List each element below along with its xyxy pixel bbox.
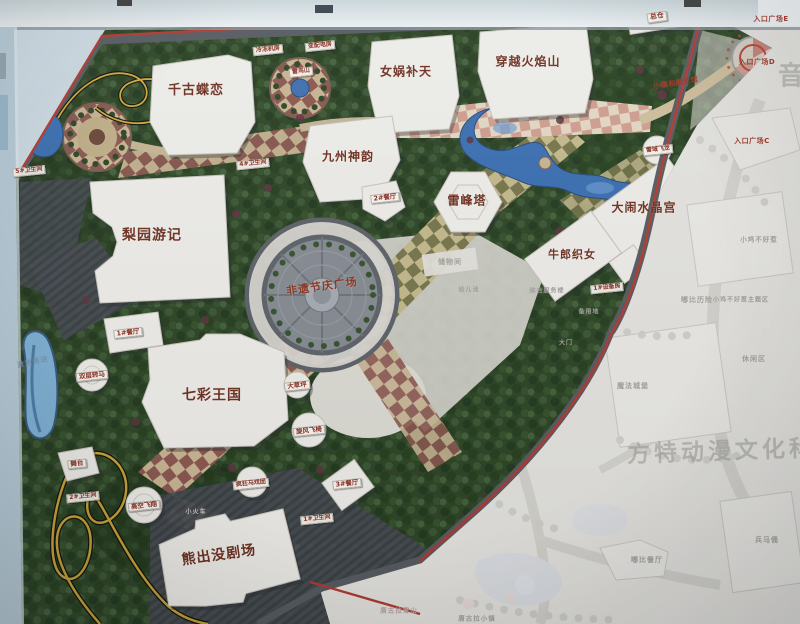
facility-label: 疯狂马戏团 — [233, 478, 270, 490]
facility-label: 雪域飞龙 — [643, 144, 674, 156]
label-layer: 千古蝶恋女娲补天穿越火焰山九州神韵雷峰塔大闹水晶宫牛郎织女梨园游记七彩王国熊出没… — [0, 0, 800, 624]
attraction-label: 梨园游记 — [122, 228, 182, 243]
facility-label: 2#餐厅 — [370, 192, 400, 204]
attraction-label: 大闹水晶宫 — [611, 201, 676, 214]
attraction-label: 熊出没剧场 — [181, 543, 257, 569]
watermark-text: 音 — [778, 63, 800, 92]
attraction-label: 穿越火焰山 — [495, 55, 560, 68]
facility-label: 大草坪 — [284, 380, 310, 392]
facility-label: 5#卫生间 — [12, 165, 46, 177]
ghost-area-label: 小鸡不好惹 — [740, 236, 778, 243]
facility-label: 1#设备房 — [590, 282, 624, 294]
park-map-photo: 千古蝶恋女娲补天穿越火焰山九州神韵雷峰塔大闹水晶宫牛郎织女梨园游记七彩王国熊出没… — [0, 0, 800, 624]
ghost-area-label: 大门 — [559, 341, 573, 348]
entrance-label: 入口广场D — [739, 59, 775, 67]
facility-label: 高空飞翔 — [128, 500, 161, 512]
ghost-area-label: 魔法城堡 — [617, 383, 649, 391]
facility-label: 4#卫生间 — [236, 158, 270, 170]
attraction-label: 九州神韵 — [322, 150, 374, 163]
watermark-text: 方特动漫文化科技 — [627, 436, 800, 469]
facility-label: 1#餐厅 — [113, 327, 143, 339]
ghost-area-label: 备用地 — [578, 310, 599, 317]
attraction-label: 牛郎织女 — [548, 249, 596, 261]
entrance-label: 入口广场E — [753, 16, 788, 24]
facility-label: 1#卫生间 — [300, 513, 334, 525]
facility-label: 3#餐厅 — [332, 478, 362, 490]
entrance-label: 小镇和展示馆 — [653, 76, 699, 91]
entrance-label: 入口广场C — [734, 138, 770, 146]
ghost-area-label: 小鸡不好惹主题区 — [713, 298, 769, 305]
ghost-area-label: 储物间 — [438, 259, 462, 267]
facility-label: 雷鸟山 — [289, 66, 314, 77]
ghost-area-label: 小火车 — [185, 510, 206, 517]
ghost-area-label: 兵马俑 — [755, 537, 779, 545]
facility-label: 冷冻机房 — [253, 44, 284, 56]
facility-label: 旋风飞椅 — [293, 425, 326, 437]
facility-label: 总仓 — [646, 11, 667, 23]
ghost-area-label: 幼儿池 — [458, 288, 479, 295]
facility-label: 舞台 — [67, 458, 87, 469]
facility-label: 2#卫生间 — [66, 491, 100, 503]
ghost-area-label: 休闲区 — [742, 356, 766, 364]
facility-label: 变配电房 — [305, 40, 336, 52]
ghost-area-label: 嘟比餐厅 — [631, 557, 663, 565]
ghost-area-label: 激流勇进 — [17, 356, 50, 370]
ghost-area-label: 综合服务楼 — [529, 289, 564, 296]
ghost-area-label: 嘟比历险 — [681, 297, 713, 305]
facility-label: 双层转马 — [76, 370, 109, 382]
attraction-label: 非遗节庆广场 — [286, 276, 359, 298]
attraction-label: 女娲补天 — [380, 65, 432, 78]
attraction-label: 千古蝶恋 — [168, 84, 224, 98]
ghost-area-label: 唐古拉雪山 — [380, 607, 418, 614]
attraction-label: 雷峰塔 — [447, 194, 486, 207]
attraction-label: 七彩王国 — [182, 388, 242, 403]
ghost-area-label: 唐古拉小镇 — [458, 615, 496, 622]
